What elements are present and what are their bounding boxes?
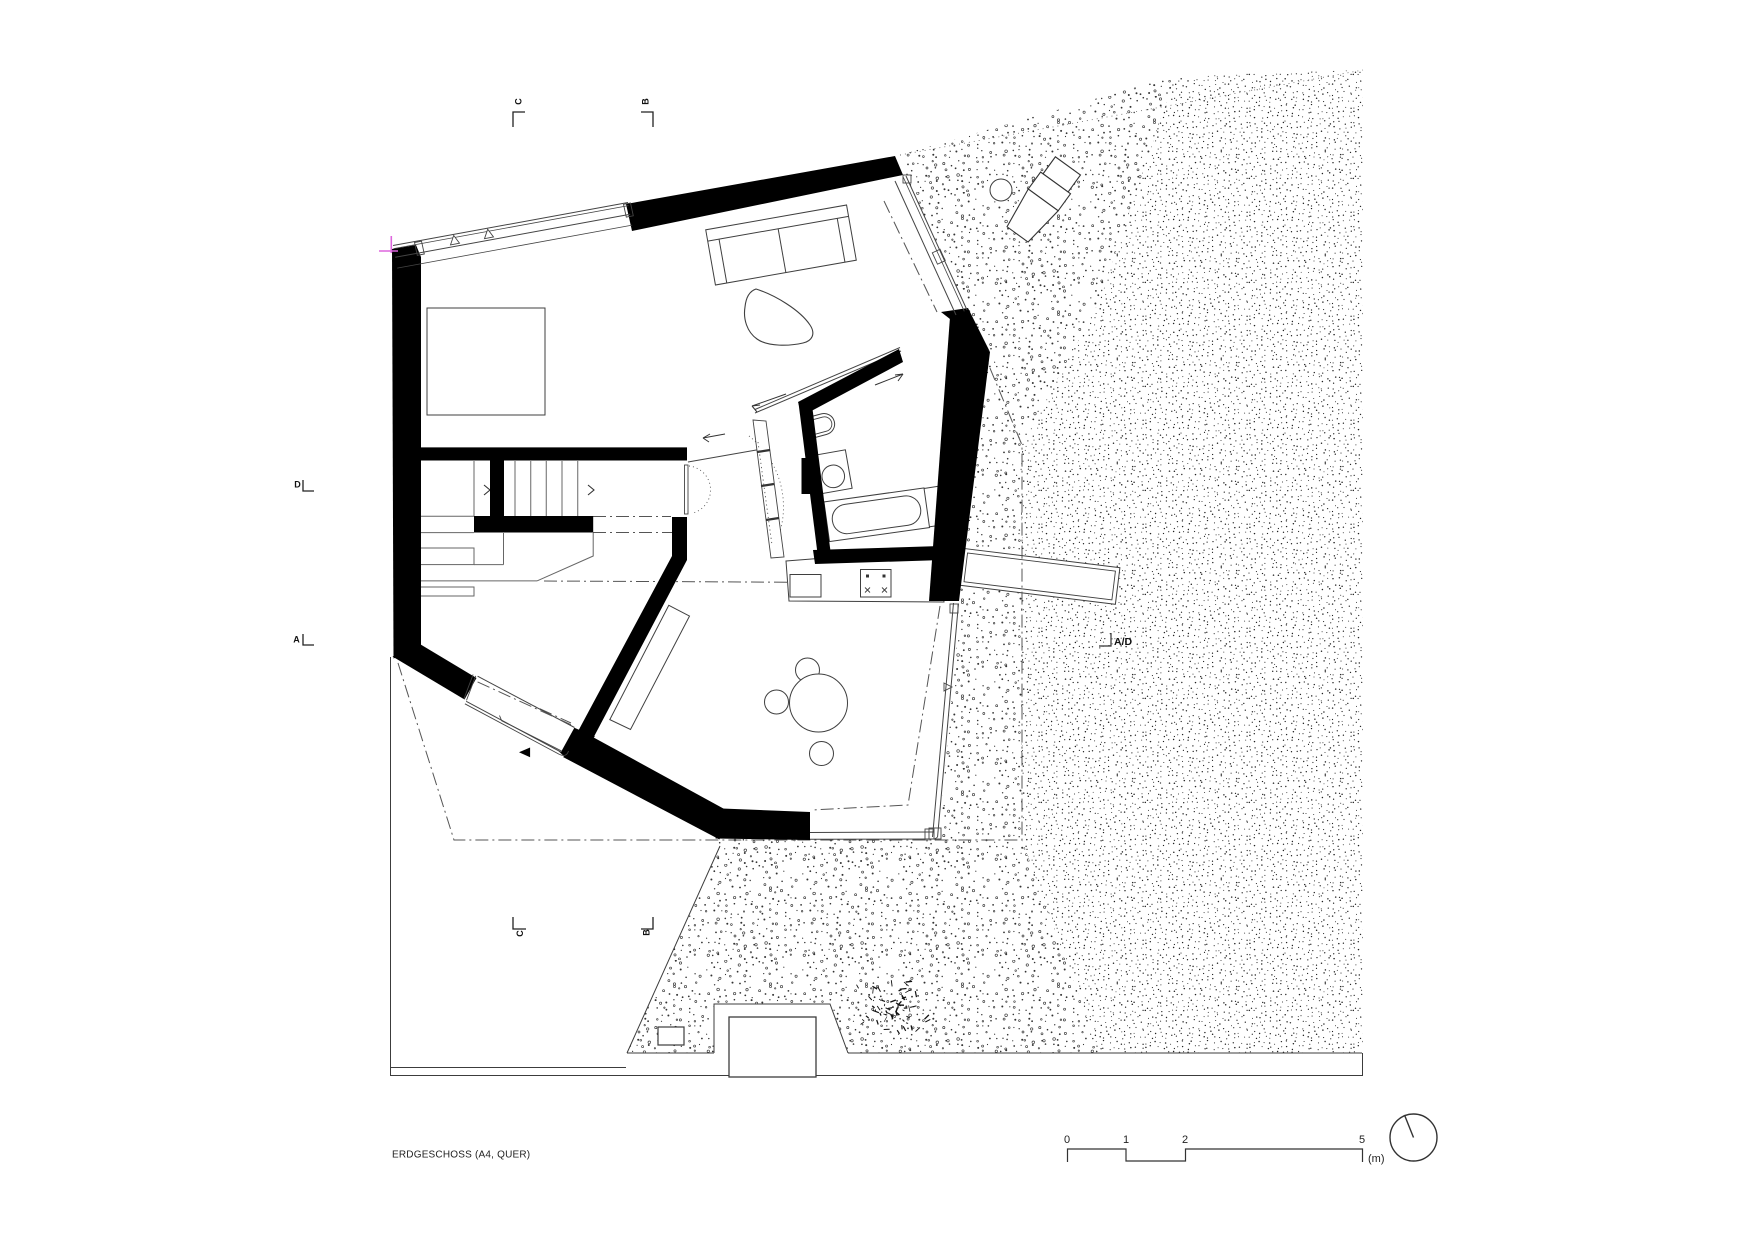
svg-text:B: B: [641, 98, 651, 105]
svg-text:A/D: A/D: [1114, 636, 1133, 648]
svg-text:C: C: [515, 930, 525, 937]
svg-text:C: C: [514, 98, 524, 105]
svg-text:B: B: [642, 929, 652, 936]
svg-text:2: 2: [1182, 1134, 1188, 1146]
svg-text:D: D: [294, 480, 301, 490]
svg-text:A: A: [293, 635, 300, 645]
svg-text:(m): (m): [1368, 1153, 1385, 1165]
svg-text:0: 0: [1064, 1134, 1070, 1146]
svg-text:1: 1: [1123, 1134, 1129, 1146]
svg-text:ERDGESCHOSS (A4, QUER): ERDGESCHOSS (A4, QUER): [392, 1150, 530, 1161]
svg-text:5: 5: [1359, 1134, 1365, 1146]
